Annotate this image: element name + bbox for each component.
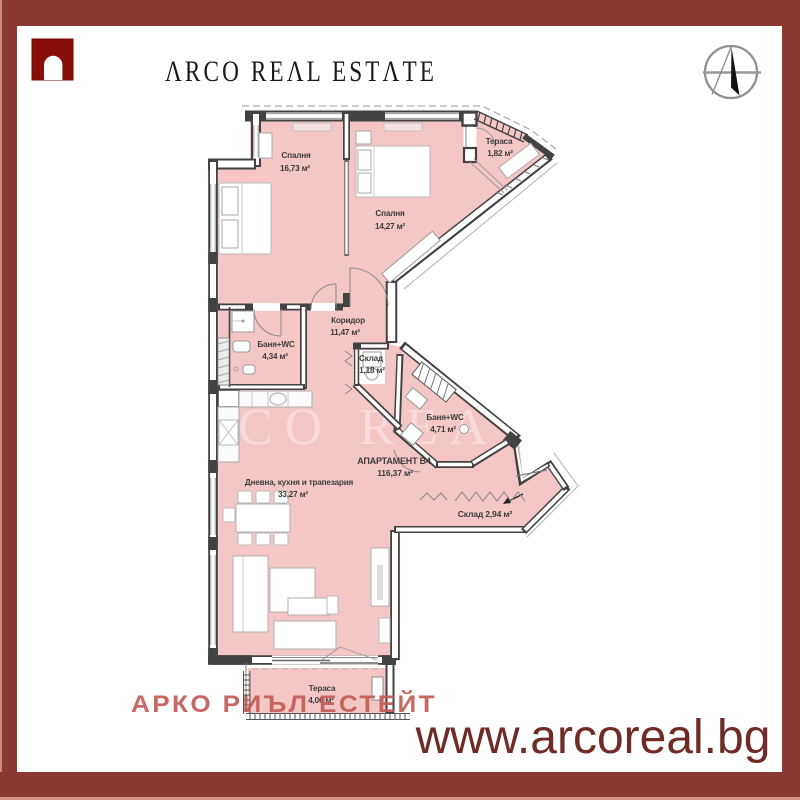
svg-text:1,18 м²: 1,18 м²: [359, 366, 385, 375]
svg-text:АПАРТАМЕНТ В4: АПАРТАМЕНТ В4: [357, 456, 431, 466]
svg-text:Дневна, кухня и трапезария: Дневна, кухня и трапезария: [245, 478, 354, 487]
svg-text:Склад 2,94 м²: Склад 2,94 м²: [458, 509, 513, 519]
svg-text:АРКО РИЪЛ ЕСТЕЙТ: АРКО РИЪЛ ЕСТЕЙТ: [131, 690, 437, 718]
svg-text:Склад: Склад: [359, 354, 384, 363]
svg-text:Баня+WC: Баня+WC: [426, 413, 463, 422]
svg-text:Тераса: Тераса: [486, 137, 513, 146]
svg-text:4,34 м²: 4,34 м²: [262, 352, 288, 361]
svg-text:4,71 м²: 4,71 м²: [430, 425, 456, 434]
svg-text:Коридор: Коридор: [331, 316, 365, 325]
svg-text:Баня+WC: Баня+WC: [257, 340, 294, 349]
svg-text:Спалня: Спалня: [281, 151, 311, 160]
svg-text:16,73 м²: 16,73 м²: [280, 164, 310, 173]
svg-text:Спалня: Спалня: [375, 209, 405, 218]
svg-text:14,27 м²: 14,27 м²: [375, 222, 405, 231]
svg-text:33,27 м²: 33,27 м²: [278, 490, 308, 499]
svg-text:11,47 м²: 11,47 м²: [330, 328, 360, 337]
svg-text:www.arcoreal.bg: www.arcoreal.bg: [415, 711, 771, 764]
svg-text:ΛRCO REΛL ESTΛTE: ΛRCO REΛL ESTΛTE: [165, 55, 437, 88]
svg-text:116,37 м²: 116,37 м²: [377, 468, 413, 478]
svg-text:1,82 м²: 1,82 м²: [487, 149, 513, 158]
